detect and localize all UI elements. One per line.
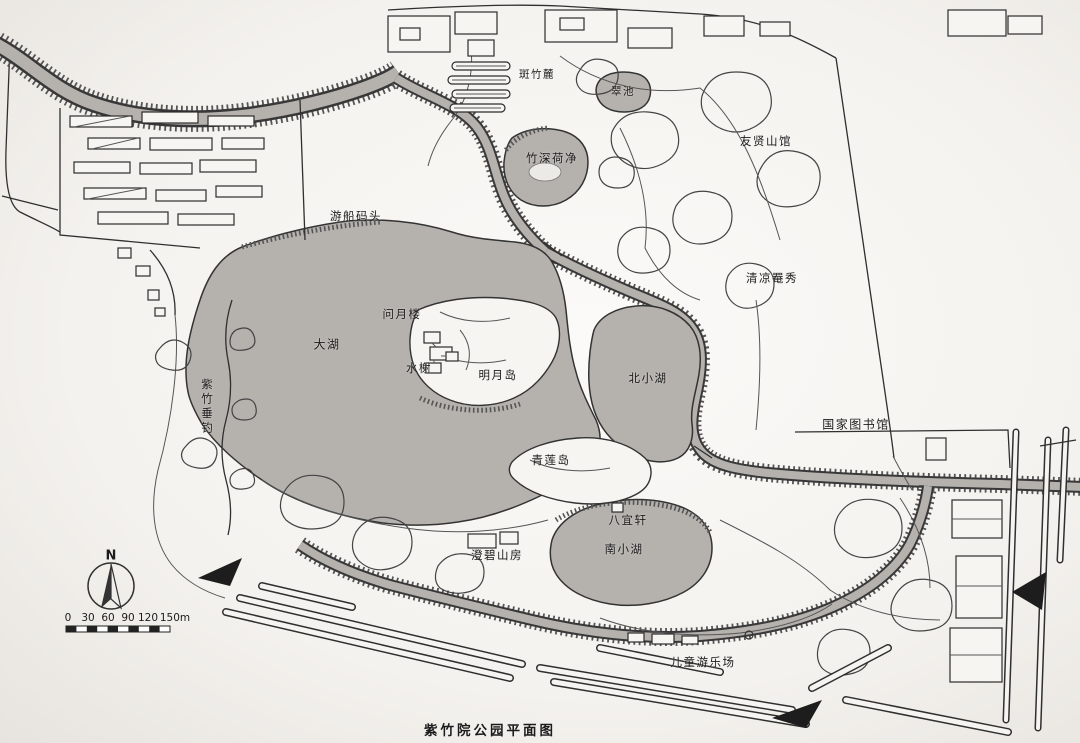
label-chengbishanfang: 澄碧山房 (471, 547, 523, 563)
scale-tick-120: 120 (138, 612, 158, 624)
east-entrance-arrow (1012, 572, 1046, 610)
label-nanxiaohu: 南小湖 (605, 541, 644, 557)
map-title: 紫竹院公园平面图 (424, 719, 556, 739)
label-mingyuedao: 明月岛 (479, 367, 518, 383)
scale-tick-150: 150m (160, 612, 190, 624)
label-qingliandao: 青莲岛 (532, 452, 571, 468)
label-ertongyoulechang: 儿童游乐场 (671, 654, 736, 670)
bamboo-grove-bars (448, 62, 510, 112)
park-map-canvas (0, 0, 1080, 743)
scale-bar (66, 626, 170, 632)
label-guojiatushuguan: 国家图书馆 (822, 416, 890, 433)
label-youxianshanguan: 友贤山馆 (740, 133, 792, 149)
scale-tick-60: 60 (101, 612, 114, 624)
label-zhushenhejing: 竹深荷净 (526, 150, 578, 166)
label-shuixie: 水榭 (406, 360, 432, 376)
compass-north-label: N (106, 549, 117, 564)
label-cuichi: 翠池 (611, 84, 635, 99)
scale-tick-0: 0 (65, 612, 72, 624)
label-dahu: 大湖 (313, 336, 340, 353)
scale-tick-90: 90 (121, 612, 134, 624)
label-qingliangyanxiu: 清凉罨秀 (746, 270, 798, 286)
north-river (0, 42, 398, 119)
label-youchuanmatou: 游船码头 (330, 208, 382, 224)
label-zizhuchuidiao: 紫竹垂钓 (199, 378, 215, 436)
compass-rose (88, 563, 134, 609)
label-bayixuan: 八宜轩 (609, 512, 648, 528)
west-entrance-arrow (198, 558, 242, 586)
label-banzhulu: 斑竹麓 (519, 67, 555, 82)
scale-tick-30: 30 (81, 612, 94, 624)
park-map-page: 斑竹麓 翠池 竹深荷净 友贤山馆 游船码头 清凉罨秀 问月楼 大湖 水榭 明月岛… (0, 0, 1080, 743)
label-beixiaohu: 北小湖 (629, 370, 668, 386)
label-wenyuelou: 问月楼 (383, 306, 422, 322)
